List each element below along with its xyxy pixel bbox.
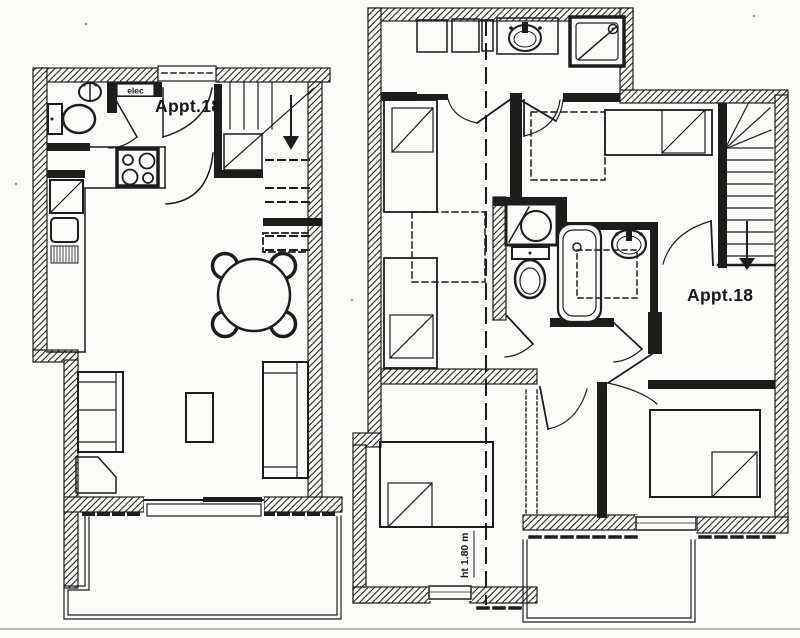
- toilet: [512, 247, 549, 298]
- cooktop: [117, 149, 158, 186]
- svg-text:ht 1.80 m: ht 1.80 m: [459, 532, 471, 578]
- scan-speck: [85, 23, 87, 25]
- scanned-floor-plan-page: elec: [0, 0, 800, 638]
- round-table: [218, 259, 290, 331]
- hand-washbasin: [79, 83, 101, 101]
- scan-speck: [15, 183, 17, 185]
- corner-washbasin: [506, 204, 557, 245]
- apartment-label-ground: Appt.18: [155, 96, 221, 116]
- bedroom-left-window: [428, 585, 472, 601]
- bathtub: [558, 224, 601, 322]
- bathroom-washbasin: [612, 229, 646, 258]
- dining-table-set: [213, 254, 296, 337]
- apartment-label-upper: Appt.18: [687, 285, 753, 305]
- floor-plan-canvas: elec: [0, 0, 800, 638]
- shower: [570, 17, 624, 66]
- entrance-recess: [158, 66, 216, 81]
- bedroom-right-window: [635, 515, 697, 532]
- toilet-bowl: [63, 105, 95, 133]
- scan-speck: [753, 15, 755, 17]
- electric-panel: elec: [117, 84, 154, 96]
- living-room-window: [144, 497, 264, 517]
- toilet-tank: [48, 104, 62, 134]
- elec-label: elec: [127, 86, 144, 96]
- scan-speck: [351, 299, 353, 301]
